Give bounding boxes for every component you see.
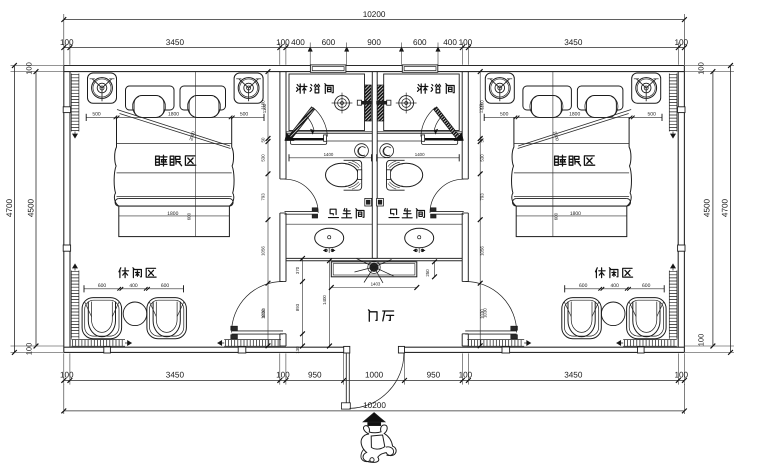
svg-text:130: 130	[295, 346, 300, 354]
svg-text:400: 400	[611, 283, 620, 289]
svg-text:4500: 4500	[26, 198, 35, 217]
svg-text:100: 100	[60, 38, 74, 47]
svg-text:4500: 4500	[703, 198, 712, 217]
svg-text:950: 950	[427, 371, 441, 380]
svg-text:1400: 1400	[322, 295, 327, 305]
svg-text:100: 100	[276, 371, 290, 380]
svg-text:400: 400	[129, 283, 138, 289]
svg-text:500: 500	[648, 112, 657, 118]
svg-text:3450: 3450	[564, 371, 583, 380]
svg-text:893: 893	[295, 303, 300, 311]
svg-text:10200: 10200	[363, 10, 386, 19]
svg-text:500: 500	[92, 112, 101, 118]
svg-text:250: 250	[425, 269, 430, 277]
svg-text:1400: 1400	[415, 152, 425, 157]
svg-text:100: 100	[674, 38, 688, 47]
svg-text:1403: 1403	[371, 282, 381, 287]
svg-text:1056: 1056	[261, 246, 266, 256]
svg-text:600: 600	[642, 283, 651, 289]
svg-text:100: 100	[674, 371, 688, 380]
svg-text:4700: 4700	[720, 198, 729, 217]
svg-text:530: 530	[261, 154, 266, 162]
svg-text:370: 370	[295, 266, 300, 274]
svg-text:793: 793	[480, 193, 485, 201]
svg-text:1030: 1030	[482, 308, 487, 318]
svg-text:1800: 1800	[168, 112, 179, 118]
svg-text:100: 100	[697, 62, 706, 75]
svg-text:1000: 1000	[365, 371, 384, 380]
svg-text:530: 530	[480, 154, 485, 162]
svg-text:1056: 1056	[480, 246, 485, 256]
svg-text:600: 600	[554, 212, 559, 220]
svg-text:100: 100	[459, 371, 473, 380]
svg-text:1400: 1400	[324, 152, 334, 157]
svg-text:4700: 4700	[5, 198, 14, 217]
svg-text:793: 793	[261, 193, 266, 201]
svg-text:600: 600	[98, 283, 107, 289]
svg-text:3450: 3450	[564, 38, 583, 47]
svg-text:1800: 1800	[167, 211, 178, 217]
svg-text:1800: 1800	[569, 112, 580, 118]
svg-text:600: 600	[579, 283, 588, 289]
svg-text:100: 100	[276, 38, 290, 47]
svg-text:100: 100	[697, 334, 706, 347]
svg-text:600: 600	[161, 283, 170, 289]
svg-text:400: 400	[443, 38, 457, 47]
svg-text:1800: 1800	[570, 211, 581, 217]
svg-text:900: 900	[367, 38, 381, 47]
svg-text:100: 100	[25, 62, 34, 75]
svg-text:3450: 3450	[166, 371, 185, 380]
svg-text:400: 400	[291, 38, 305, 47]
svg-text:950: 950	[308, 371, 322, 380]
svg-text:100: 100	[60, 371, 74, 380]
svg-text:600: 600	[187, 212, 192, 220]
svg-text:1030: 1030	[261, 308, 266, 318]
svg-text:1100: 1100	[261, 100, 266, 110]
svg-text:1100: 1100	[480, 100, 485, 110]
svg-text:600: 600	[322, 38, 336, 47]
svg-text:50: 50	[261, 137, 266, 142]
svg-text:50: 50	[480, 137, 485, 142]
svg-text:500: 500	[240, 112, 249, 118]
svg-text:3450: 3450	[166, 38, 185, 47]
svg-text:500: 500	[500, 112, 509, 118]
svg-text:100: 100	[25, 343, 34, 356]
svg-text:600: 600	[413, 38, 427, 47]
svg-text:100: 100	[459, 38, 473, 47]
